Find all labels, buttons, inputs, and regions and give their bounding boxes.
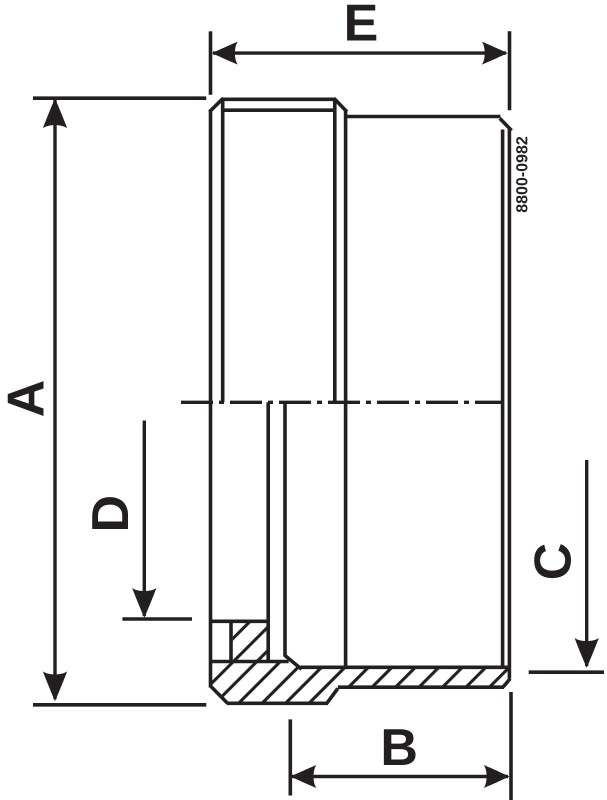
svg-text:E: E — [344, 0, 379, 52]
svg-text:A: A — [0, 380, 55, 418]
svg-text:D: D — [82, 495, 140, 533]
svg-text:B: B — [380, 719, 418, 777]
svg-text:C: C — [524, 543, 582, 581]
